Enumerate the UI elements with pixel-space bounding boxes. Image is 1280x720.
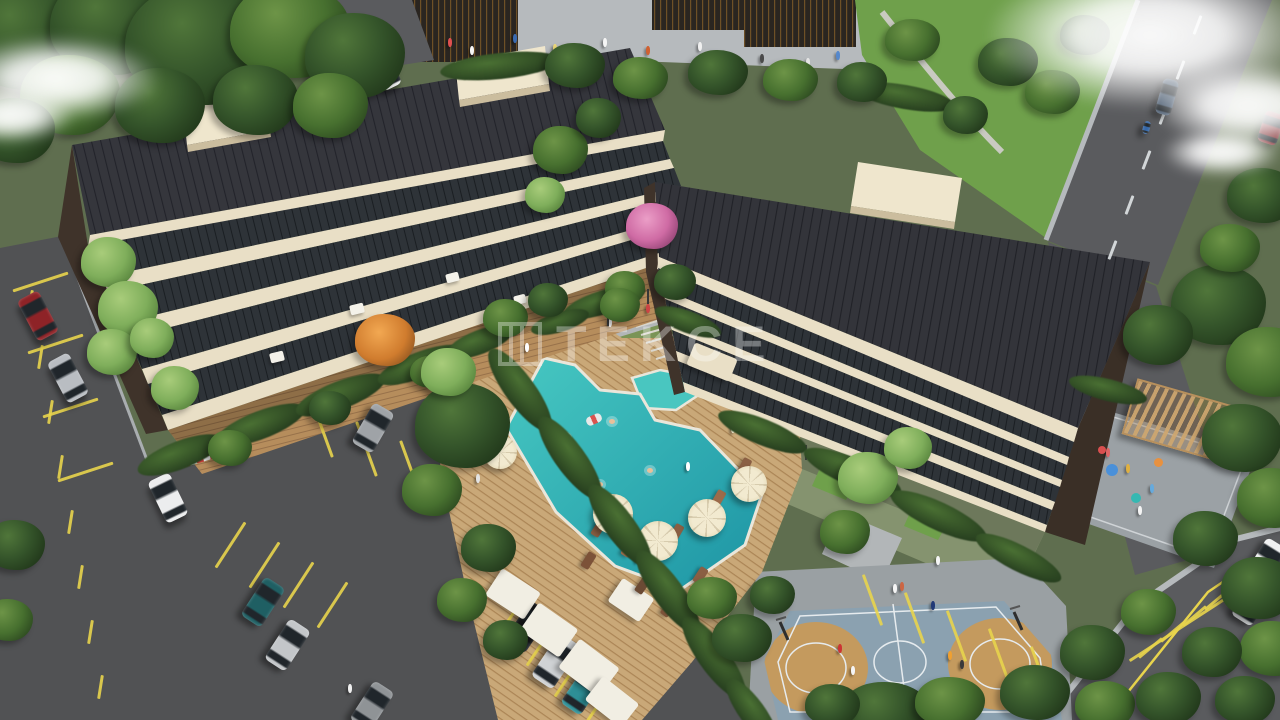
tree [1121, 589, 1176, 635]
tree [1173, 511, 1238, 566]
tree [402, 464, 462, 516]
mark [903, 592, 924, 644]
person [476, 474, 480, 483]
tree [885, 19, 940, 61]
mark [12, 272, 68, 293]
person [448, 38, 452, 47]
aerial-render: ♿ TEKCE [0, 0, 1280, 720]
tree [1123, 305, 1193, 365]
person [900, 582, 904, 591]
tree [688, 50, 748, 95]
person [698, 42, 702, 51]
tree [915, 677, 985, 720]
cloud [1162, 128, 1280, 176]
playitem [1131, 493, 1141, 503]
tree [421, 348, 476, 396]
tree [763, 59, 818, 101]
tree [0, 599, 33, 641]
swimmer [609, 419, 615, 424]
person [646, 304, 650, 313]
person [836, 51, 840, 60]
car-silver-suv [263, 618, 310, 672]
tree [533, 126, 588, 174]
person [1138, 506, 1142, 515]
playitem [1098, 446, 1106, 454]
swimmer [647, 468, 653, 473]
person [760, 54, 764, 63]
car-dark-teal [240, 576, 285, 628]
mark [67, 510, 74, 534]
mark [77, 565, 84, 589]
mark [1124, 195, 1134, 215]
mark [1107, 240, 1117, 260]
pole [647, 289, 649, 304]
tree [461, 524, 516, 572]
cloud [0, 88, 75, 143]
hedge [713, 402, 811, 462]
person [931, 601, 935, 610]
tree [805, 684, 860, 720]
car-gray [349, 680, 394, 720]
tree [1215, 676, 1275, 720]
person [1106, 448, 1110, 457]
tree [943, 96, 988, 134]
watermark-logo-icon [498, 322, 542, 366]
person [1150, 484, 1154, 493]
tree [1221, 557, 1280, 619]
pink-flowering-tree [626, 203, 678, 249]
tree [1136, 672, 1201, 720]
person [646, 46, 650, 55]
tree [81, 237, 136, 287]
person [838, 644, 842, 653]
tree [545, 43, 605, 88]
tree [613, 57, 668, 99]
tree [213, 65, 298, 135]
tree [1237, 468, 1280, 528]
tree [1060, 625, 1125, 680]
mark [97, 675, 104, 699]
person [603, 38, 607, 47]
tree [820, 510, 870, 554]
mark [861, 574, 882, 626]
mark [57, 455, 64, 479]
mark [316, 582, 348, 629]
hedge [1067, 370, 1150, 411]
watermark: TEKCE [498, 322, 775, 366]
pool-float [585, 412, 603, 427]
mark [214, 522, 246, 569]
mark [57, 462, 113, 483]
umbrella [688, 499, 726, 537]
tree [1202, 404, 1280, 472]
tree [415, 383, 510, 468]
watermark-text: TEKCE [556, 322, 775, 366]
tree [1240, 621, 1280, 676]
tree [208, 430, 252, 466]
tree [525, 177, 565, 213]
tree [1200, 224, 1260, 272]
tree [151, 366, 199, 410]
person [960, 660, 964, 669]
hedge [439, 47, 561, 85]
tree [293, 73, 368, 138]
tree [1075, 681, 1135, 720]
person [1126, 464, 1130, 473]
car-white-sedan [147, 472, 189, 524]
scooter [1141, 120, 1151, 134]
person [851, 666, 855, 675]
mark [987, 628, 1008, 680]
umbrella [731, 466, 767, 502]
tree [1182, 627, 1242, 677]
tree [437, 578, 487, 622]
car-red [17, 290, 60, 342]
hedge [970, 525, 1066, 591]
tree [884, 427, 932, 469]
tree [1000, 665, 1070, 720]
orange-flowering-tree [355, 314, 415, 366]
tree [687, 577, 737, 619]
person [948, 651, 952, 660]
table [445, 271, 460, 283]
person [470, 46, 474, 55]
person [936, 556, 940, 565]
tree [576, 98, 621, 138]
person [348, 684, 352, 693]
tree [130, 318, 174, 358]
mark [282, 562, 314, 609]
tree [528, 283, 568, 317]
tree [837, 62, 887, 102]
playitem [1154, 458, 1163, 467]
mark [87, 620, 94, 644]
tree [483, 620, 528, 660]
car-silver [47, 352, 90, 404]
hedge [718, 672, 786, 720]
table [349, 302, 365, 315]
tree [309, 391, 351, 425]
playitem [1106, 464, 1118, 476]
table [269, 350, 285, 363]
lounger [580, 550, 597, 569]
tree [750, 576, 795, 614]
person [513, 34, 517, 43]
person [893, 584, 897, 593]
car-gray [351, 402, 395, 454]
person [686, 462, 690, 471]
tree [712, 614, 772, 662]
mark [1141, 150, 1151, 170]
tree [654, 264, 696, 300]
tree [0, 520, 45, 570]
